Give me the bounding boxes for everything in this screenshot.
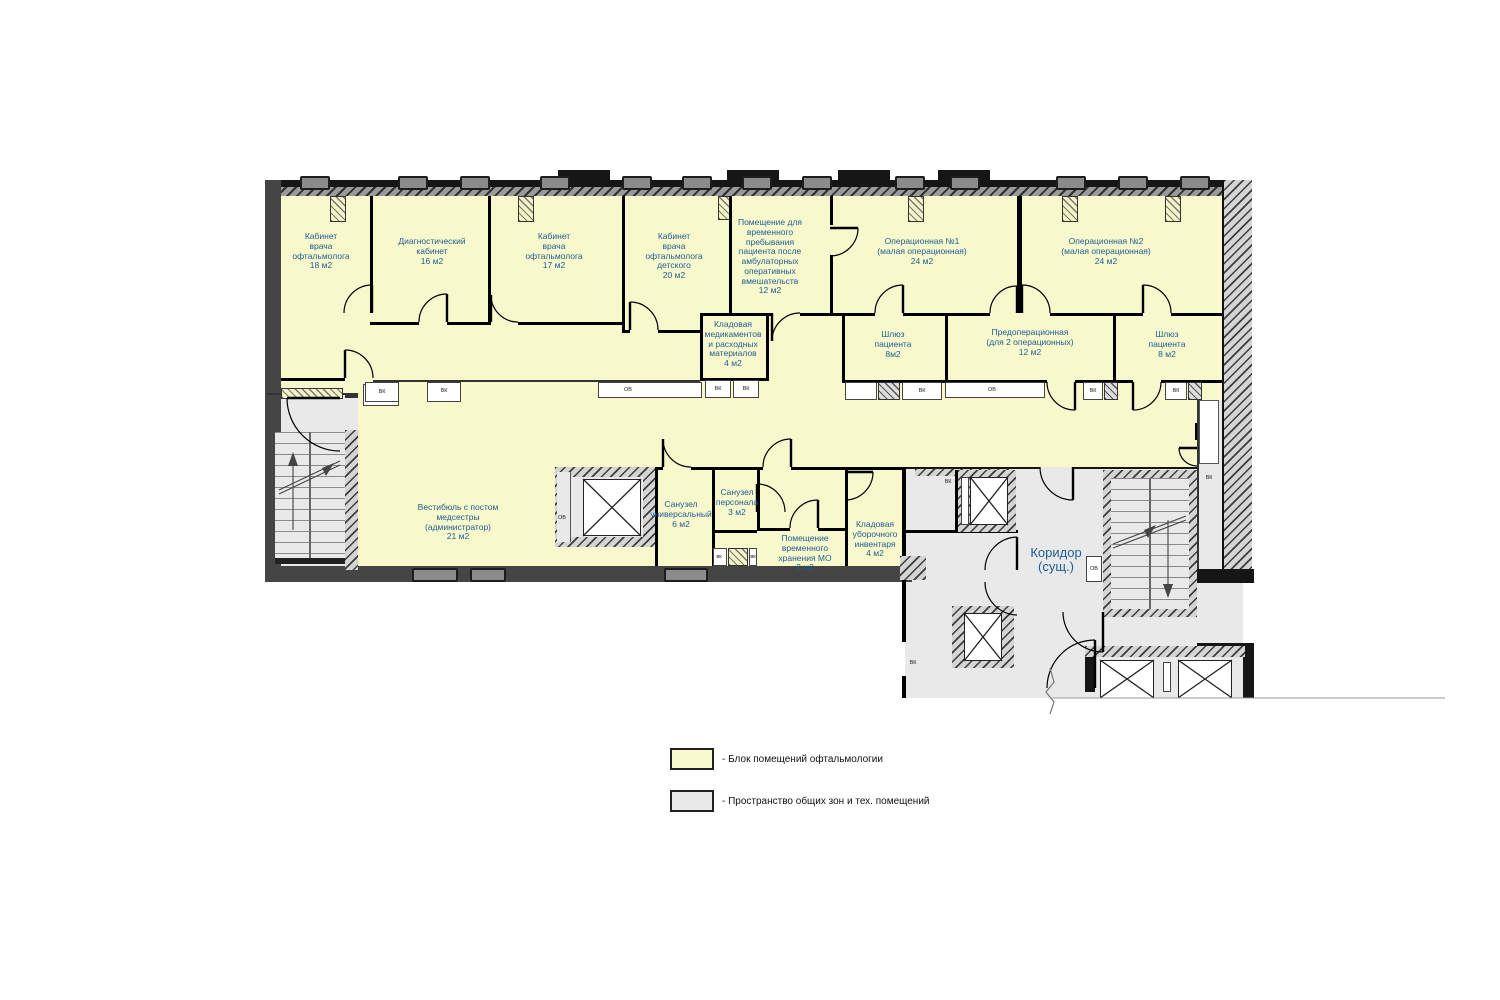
floor-plan: Кабинет врача офтальмолога 18 м2 Диагнос… (0, 0, 1500, 1000)
legend-label-ophthalmology: - Блок помещений офтальмологии (722, 754, 883, 765)
window (664, 568, 708, 582)
window (300, 176, 330, 190)
wall (658, 330, 700, 333)
wall-hatch (900, 556, 926, 580)
elevator-cab (970, 477, 1008, 525)
wall (345, 393, 358, 398)
exterior-wall-right (1222, 180, 1252, 577)
room-label-exam-18: Кабинет врача офтальмолога 18 м2 (292, 232, 349, 271)
window (470, 568, 506, 582)
room-label-operating-2: Операционная №2 (малая операционная) 24 … (1061, 237, 1150, 266)
vent-box (845, 382, 877, 400)
stair-landing-edge (275, 558, 345, 564)
stair-divider (1149, 478, 1151, 609)
room-label-exam-17: Кабинет врача офтальмолога 17 м2 (525, 232, 582, 271)
shaft-label: ВК (910, 660, 917, 666)
wall (1050, 313, 1143, 316)
elevator-cab (583, 479, 641, 536)
wall (757, 528, 790, 531)
room-label-staff-bathroom: Санузел персонала 3 м2 (716, 488, 758, 517)
shaft-label: ВК (919, 388, 926, 394)
pier-post (330, 196, 346, 222)
staircase-wall (345, 430, 358, 570)
pier-post (1062, 196, 1078, 222)
wall (622, 196, 625, 330)
window (1056, 176, 1086, 190)
exterior-wall-step (1197, 569, 1254, 583)
wall-tab (838, 170, 890, 181)
room-label-corridor-existing: Коридор (сущ.) (1030, 546, 1081, 575)
shaft-label: ОВ (558, 515, 566, 521)
room-label-diagnostic-16: Диагностический кабинет 16 м2 (398, 237, 465, 266)
elevator-cab (1100, 660, 1154, 698)
vent-shaft (1085, 657, 1095, 692)
room-label-vestibule: Вестибюль с постом медсестры (администра… (418, 503, 499, 542)
legend-swatch-ophthalmology (670, 748, 714, 770)
shaft-label: ВК (1206, 475, 1213, 481)
wall (766, 313, 769, 381)
wall (902, 676, 906, 698)
window (950, 176, 980, 190)
legend-label-common-zones: - Пространство общих зон и тех. помещени… (722, 796, 930, 807)
room-label-universal-bathroom: Санузел универсальный 6 м2 (650, 500, 711, 529)
wall (800, 313, 830, 316)
legend-item-ophthalmology: - Блок помещений офтальмологии (670, 748, 883, 770)
vent-shaft (961, 477, 969, 525)
pier-post (518, 196, 534, 222)
vent-box-hatch (1104, 382, 1118, 400)
wall (1171, 313, 1222, 316)
legend-item-common-zones: - Пространство общих зон и тех. помещени… (670, 790, 930, 812)
wall (902, 467, 906, 642)
wall (842, 313, 845, 383)
room-label-airlock-right: Шлюз пациента 8 м2 (1149, 330, 1186, 359)
shaft-label: ОВ (988, 387, 996, 393)
room-label-airlock-left: Шлюз пациента 8м2 (875, 330, 912, 359)
shaft-label: вк (716, 554, 721, 560)
room-label-temporary-stay-12: Помещение для временного пребывания паци… (738, 218, 802, 296)
shaft-label: ВК (743, 386, 750, 392)
shaft-label: ОВ (624, 387, 632, 393)
elevator-cab (964, 613, 1002, 661)
stair-divider (309, 432, 311, 562)
window (802, 176, 832, 190)
room-label-cleaning-storage: Кладовая уборочного инвентаря 4 м2 (853, 520, 898, 559)
wall (281, 378, 345, 381)
shaft-label: ВК (379, 389, 386, 395)
wall (830, 255, 833, 313)
window (412, 568, 458, 582)
room-label-pediatric-20: Кабинет врача офтальмолога детского 20 м… (645, 232, 702, 281)
wall (518, 322, 622, 325)
room-label-preoperative: Предоперационная (для 2 операционных) 12… (986, 328, 1073, 357)
shaft-label: ВК (1173, 388, 1180, 394)
wall (830, 313, 875, 316)
wall-hatch-strip (281, 388, 343, 399)
window (895, 176, 925, 190)
pier-post (908, 196, 924, 222)
vent-shaft (1163, 662, 1171, 692)
wall (818, 528, 845, 531)
wall-hatch-band-elevators (1085, 646, 1245, 657)
wall (691, 467, 763, 470)
wall (488, 196, 491, 322)
shaft-label: ВК (715, 386, 722, 392)
window (460, 176, 490, 190)
wall (830, 196, 833, 225)
wall (370, 322, 419, 325)
wall (845, 467, 848, 566)
wall (945, 313, 948, 383)
shaft-label: ВК (1090, 388, 1097, 394)
wall (903, 313, 990, 316)
wall (729, 313, 772, 316)
legend-swatch-common-zones (670, 790, 714, 812)
wall (1073, 467, 1197, 469)
wall (622, 330, 630, 333)
room-label-storage-mo: Помещение временного хранения МО 3 м2 (778, 534, 831, 573)
room-label-storage-medications: Кладовая медикаментов и расходных матери… (704, 320, 761, 369)
wall (729, 196, 732, 313)
wall (447, 322, 491, 325)
shaft-label: ОВ (1090, 566, 1098, 572)
vent-column (557, 472, 571, 542)
wall (791, 467, 905, 470)
window (622, 176, 652, 190)
room-label-operating-1: Операционная №1 (малая операционная) 24 … (877, 237, 966, 266)
wall-thin (373, 380, 622, 382)
window (1180, 176, 1210, 190)
elevator-cab (1178, 660, 1232, 698)
shaft-label: вк (750, 554, 755, 560)
vent-box-hatch (1188, 382, 1202, 400)
window (540, 176, 570, 190)
wall (700, 313, 703, 381)
wall (712, 530, 757, 533)
wall (370, 196, 373, 313)
shaft-label: ВК (441, 388, 448, 394)
vent-box-hatch (878, 382, 900, 400)
window (1118, 176, 1148, 190)
window (742, 176, 772, 190)
heating-box (598, 382, 702, 398)
pier-post (1165, 196, 1181, 222)
shaft-label: ВК (945, 479, 952, 485)
wall (1017, 196, 1022, 313)
glazed-partition (1199, 400, 1219, 464)
wall (1113, 313, 1116, 383)
vent-box-hatch (728, 548, 748, 566)
window (398, 176, 428, 190)
window (682, 176, 712, 190)
